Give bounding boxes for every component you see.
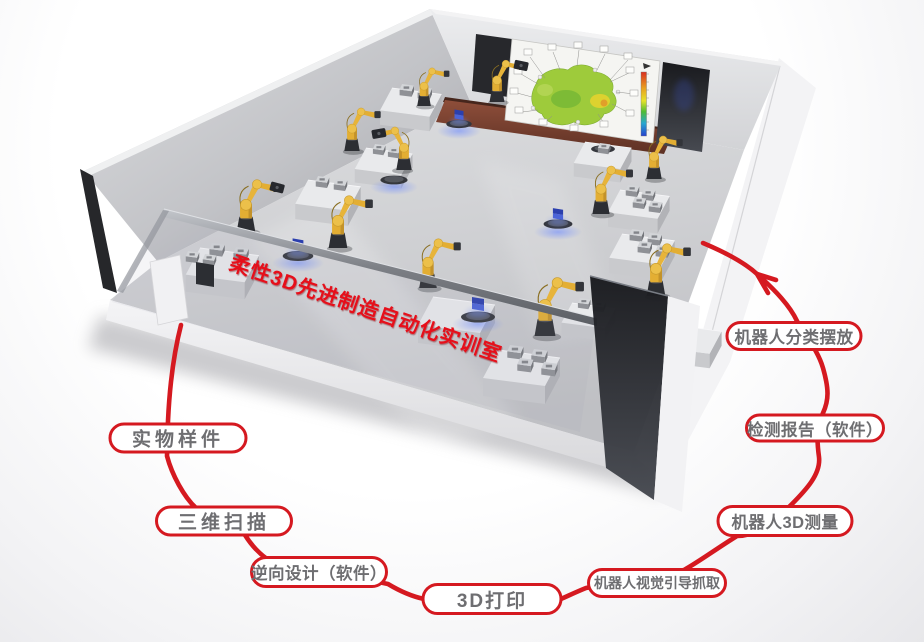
flow-label-3d-printing: 3D打印 bbox=[422, 583, 563, 615]
flow-label-vision-guided-grasping: 机器人视觉引导抓取 bbox=[587, 568, 727, 598]
sample-part bbox=[633, 197, 647, 209]
sample-part bbox=[649, 201, 663, 213]
dark-cabinet bbox=[196, 262, 214, 287]
flow-label-physical-sample: 实物样件 bbox=[109, 423, 248, 454]
sample-part bbox=[598, 143, 611, 154]
flow-label-robot-3d-measurement: 机器人3D测量 bbox=[717, 505, 854, 537]
flow-label-robot-sorting: 机器人分类摆放 bbox=[726, 321, 863, 351]
sample-part bbox=[186, 251, 200, 263]
sample-part bbox=[373, 144, 386, 155]
turntable bbox=[380, 176, 407, 185]
sample-part bbox=[638, 241, 652, 254]
diagram-canvas: 柔性3D先进制造自动化实训室 实物样件 三维扫描 逆向设计（软件） 3D打印 机… bbox=[0, 0, 924, 642]
sample-part bbox=[316, 176, 330, 188]
sample-part bbox=[400, 84, 414, 97]
flow-label-3d-scanning: 三维扫描 bbox=[155, 506, 293, 537]
sample-part bbox=[630, 229, 644, 242]
flow-label-reverse-design: 逆向设计（软件） bbox=[250, 556, 388, 588]
sample-part bbox=[388, 147, 401, 158]
sample-part bbox=[334, 179, 348, 191]
flow-label-inspection-report: 检测报告（软件） bbox=[745, 414, 885, 443]
sample-part bbox=[578, 298, 591, 309]
sample-part bbox=[626, 185, 640, 197]
